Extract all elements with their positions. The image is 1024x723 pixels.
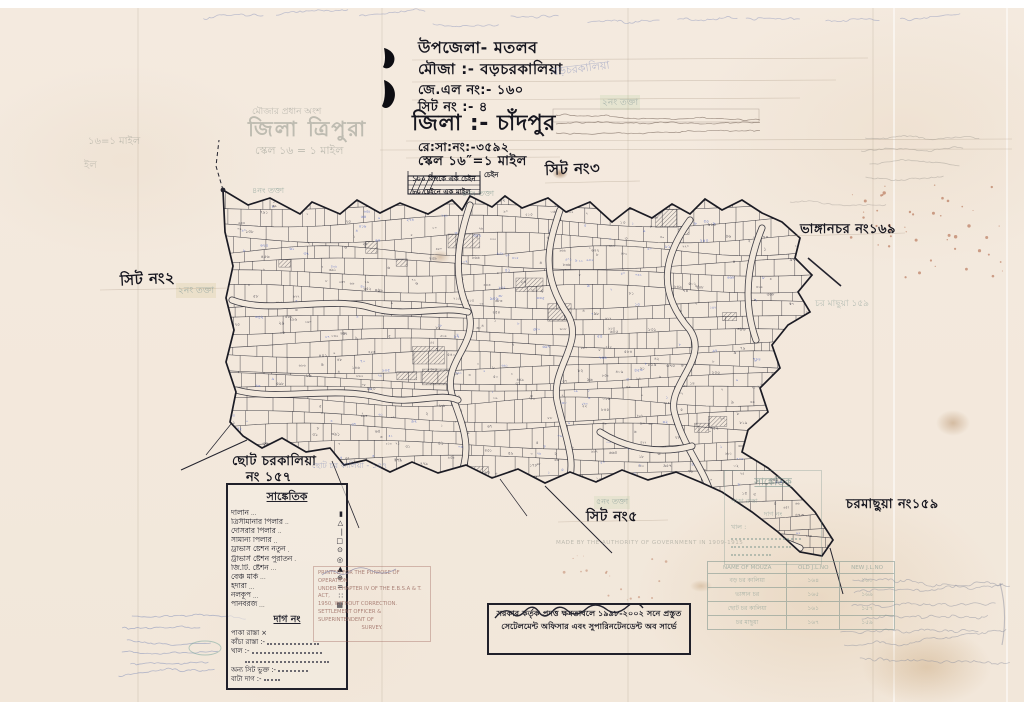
svg-text:০০৫: ০০৫ xyxy=(536,296,545,301)
svg-text:৬১: ৬১ xyxy=(379,413,384,417)
svg-text:৯৩৯: ৯৩৯ xyxy=(448,456,456,460)
svg-text:৯৬: ৯৬ xyxy=(587,378,593,383)
svg-text:১৯: ১৯ xyxy=(364,280,369,284)
svg-text:১: ১ xyxy=(763,248,766,253)
svg-text:১৮২: ১৮২ xyxy=(423,480,431,485)
svg-text:৫৮০: ৫৮০ xyxy=(581,346,589,350)
svg-text:৬: ৬ xyxy=(694,222,697,227)
svg-text:৯: ৯ xyxy=(736,378,739,382)
svg-text:২২: ২২ xyxy=(582,403,588,408)
jl-number-table: NAME OF MOUZA OLD J.L.NO NEW J.L.NO বড় … xyxy=(707,561,895,630)
svg-text:৫৪: ৫৪ xyxy=(597,334,603,339)
header-jl-no: জে.এল নং:- ১৬০ xyxy=(418,84,524,98)
svg-text:৯৬৯: ৯৬৯ xyxy=(559,248,565,252)
svg-text:৭৬: ৭৬ xyxy=(688,468,693,473)
svg-text:০: ০ xyxy=(710,478,712,482)
svg-text:৬: ৬ xyxy=(351,517,354,521)
svg-text:৮৮: ৮৮ xyxy=(548,416,553,420)
svg-text:১: ১ xyxy=(492,390,494,394)
svg-text:২: ২ xyxy=(695,301,698,305)
svg-text:৩৬৮: ৩৬৮ xyxy=(767,291,775,296)
svg-text:৬৭: ৬৭ xyxy=(487,423,492,428)
header-chain-note1: ১০০ লিংকে এক চেইন xyxy=(412,173,476,185)
svg-text:৪৩: ৪৩ xyxy=(255,383,261,388)
svg-text:২৪: ২৪ xyxy=(732,196,737,201)
svg-text:৪: ৪ xyxy=(732,260,735,265)
svg-text:০৫: ০৫ xyxy=(280,330,286,335)
svg-text:৭: ৭ xyxy=(307,241,310,246)
header-scale: স্কেল ১৬″=১ মাইল xyxy=(418,155,527,169)
svg-text:৪: ৪ xyxy=(248,283,250,287)
svg-text:৬৪: ৬৪ xyxy=(380,485,386,490)
svg-text:৮২: ৮২ xyxy=(578,369,584,374)
svg-text:১৩: ১৩ xyxy=(635,301,641,306)
svg-text:৬: ৬ xyxy=(713,221,716,226)
svg-text:৪৬: ৪৬ xyxy=(750,400,755,404)
svg-text:২৫৪: ২৫৪ xyxy=(492,310,500,315)
dag-row: অন্য সিট ভুক্ত :- xyxy=(231,666,343,675)
svg-text:১৬: ১৬ xyxy=(434,517,440,522)
svg-text:৮: ৮ xyxy=(659,479,662,483)
svg-text:০১৬: ০১৬ xyxy=(602,396,610,401)
svg-text:৯: ৯ xyxy=(659,374,661,378)
legend-title: সাঙ্কেতিক xyxy=(231,488,343,507)
svg-text:৮: ৮ xyxy=(540,508,543,512)
svg-text:২৯: ২৯ xyxy=(279,322,285,327)
svg-text:৪৫০: ৪৫০ xyxy=(435,247,441,251)
svg-text:৬১৮: ৬১৮ xyxy=(560,327,568,331)
svg-text:৪১: ৪১ xyxy=(822,363,827,367)
svg-text:৫: ৫ xyxy=(680,407,683,412)
svg-text:৪৪: ৪৪ xyxy=(817,259,822,263)
svg-text:৫১৬: ৫১৬ xyxy=(440,334,447,338)
svg-text:৯: ৯ xyxy=(271,376,274,381)
svg-text:৪৮: ৪৮ xyxy=(360,285,364,289)
traverse-station-old-icon: ◎ xyxy=(331,556,343,564)
svg-text:২০৮: ২০৮ xyxy=(825,391,833,396)
svg-text:৫: ৫ xyxy=(626,377,629,382)
svg-text:৬৯৭: ৬৯৭ xyxy=(542,344,550,349)
svg-text:৯: ৯ xyxy=(263,268,266,272)
svg-text:৪৪৯: ৪৪৯ xyxy=(516,377,524,382)
svg-text:৩১০: ৩১০ xyxy=(675,511,682,515)
header-upazila: উপজেলা- মতলব xyxy=(418,40,538,57)
svg-text:৫৮: ৫৮ xyxy=(253,294,260,299)
svg-text:৮৩৪: ৮৩৪ xyxy=(658,490,666,495)
dag-row: খাল :- xyxy=(231,647,343,665)
svg-text:৩: ৩ xyxy=(823,515,826,520)
svg-text:২৪: ২৪ xyxy=(363,241,368,246)
svg-text:৫০: ৫০ xyxy=(493,374,499,379)
svg-text:৮২: ৮২ xyxy=(435,325,441,330)
faded-board2-left: ২নং তক্তা xyxy=(176,283,216,298)
svg-text:৮৫৩: ৮৫৩ xyxy=(800,383,809,388)
svg-text:৩: ৩ xyxy=(220,386,223,391)
svg-text:৭৭৯: ৭৭৯ xyxy=(420,461,428,466)
svg-text:৮৩৯: ৮৩৯ xyxy=(602,374,610,378)
svg-text:১: ১ xyxy=(632,222,634,226)
svg-text:১৭৪: ১৭৪ xyxy=(414,480,422,485)
svg-text:৪৫৩: ৪৫৩ xyxy=(368,350,376,354)
svg-text:২৪০: ২৪০ xyxy=(700,239,709,244)
legend-item: ট্রাভার্স ষ্টেশন নতুন.⊙ xyxy=(231,546,343,555)
svg-text:৬৪৯: ৬৪৯ xyxy=(444,508,453,513)
svg-text:০: ০ xyxy=(780,349,783,354)
svg-text:৪: ৪ xyxy=(640,483,643,488)
svg-text:১১: ১১ xyxy=(578,259,583,263)
svg-text:৬৩: ৬৩ xyxy=(686,489,691,493)
dag-row: বাটা দাগ :- xyxy=(231,675,343,684)
svg-text:২৭৬: ২৭৬ xyxy=(534,539,544,544)
bhanganchar-label: ভাঙ্গানচর নং১৬৯ xyxy=(800,220,896,241)
faded-tripura-scale: স্কেল ১৬ = ১ মাইল xyxy=(255,142,343,161)
svg-text:৪৮০: ৪৮০ xyxy=(807,392,815,397)
svg-text:১: ১ xyxy=(720,444,723,449)
svg-text:৮৮৪: ৮৮৪ xyxy=(809,383,818,388)
svg-text:৮৭: ৮৭ xyxy=(789,302,794,306)
svg-text:২৯৯: ২৯৯ xyxy=(289,316,297,321)
faded-charbachhua: চর মাছুয়া ১৫৯ xyxy=(815,296,869,311)
building-icon: ▮ xyxy=(331,510,343,518)
svg-text:৮: ৮ xyxy=(679,342,681,346)
svg-text:১৮: ১৮ xyxy=(639,454,645,459)
svg-text:৩৬৩: ৩৬৩ xyxy=(645,500,653,505)
svg-text:৫৯: ৫৯ xyxy=(508,451,514,456)
svg-text:৬: ৬ xyxy=(415,281,418,286)
svg-text:৩১: ৩১ xyxy=(550,532,554,536)
svg-text:৮৭: ৮৭ xyxy=(720,417,724,421)
svg-text:৭৮০: ৭৮০ xyxy=(529,396,535,400)
svg-text:৪: ৪ xyxy=(481,323,484,328)
svg-text:৬৮৬: ৬৮৬ xyxy=(299,364,307,368)
svg-text:০৯: ০৯ xyxy=(602,421,606,425)
svg-text:০: ০ xyxy=(582,491,585,496)
svg-text:৬: ৬ xyxy=(811,375,813,379)
svg-text:৫০৫: ৫০৫ xyxy=(807,201,815,206)
svg-text:৯২১: ৯২১ xyxy=(789,341,798,346)
svg-text:৬৩৬: ৬৩৬ xyxy=(558,548,566,553)
svg-text:২: ২ xyxy=(554,452,557,457)
svg-text:২৪১: ২৪১ xyxy=(441,214,449,218)
svg-text:৮: ৮ xyxy=(756,439,759,444)
svg-text:৩০৬: ৩০৬ xyxy=(606,203,614,208)
faded-board4b: ৪নং তক্তা xyxy=(462,188,494,201)
svg-text:৮৭২: ৮৭২ xyxy=(662,483,671,488)
svg-text:২১১: ২১১ xyxy=(609,244,615,248)
svg-text:০১: ০১ xyxy=(375,289,381,294)
svg-text:৬৯১: ৬৯১ xyxy=(501,363,507,367)
svg-text:৬০: ৬০ xyxy=(670,487,676,492)
svg-text:৬৭৫: ৬৭৫ xyxy=(666,364,675,369)
svg-text:৬০৯: ৬০৯ xyxy=(305,474,313,479)
svg-text:২: ২ xyxy=(834,469,836,473)
table-row: বড় চর কালিয়া১৬৪১৬০ xyxy=(708,574,895,588)
svg-text:৮৭: ৮৭ xyxy=(454,335,460,340)
chain-label: চেইন xyxy=(484,169,498,181)
svg-text:৪: ৪ xyxy=(770,277,772,281)
svg-text:৯: ৯ xyxy=(731,400,734,405)
svg-text:০৬২: ০৬২ xyxy=(837,488,845,492)
svg-text:৬: ৬ xyxy=(588,396,591,400)
svg-text:৬৩৭: ৬৩৭ xyxy=(662,512,670,516)
faded-left-frag1: ১৬=১ মাইল xyxy=(88,134,140,151)
svg-text:৪৪৩: ৪৪৩ xyxy=(483,283,491,287)
svg-text:৭৯: ৭৯ xyxy=(796,358,801,362)
svg-text:১৪৬: ১৪৬ xyxy=(352,365,360,370)
svg-text:১: ১ xyxy=(816,258,818,262)
svg-text:২৫: ২৫ xyxy=(689,491,695,496)
svg-text:০৭: ০৭ xyxy=(477,543,483,548)
svg-text:১৯৮: ১৯৮ xyxy=(217,277,225,281)
svg-text:৯: ৯ xyxy=(734,351,737,356)
svg-text:১৯: ১৯ xyxy=(493,396,498,400)
faded-board2: ২নং তক্তা xyxy=(600,95,640,110)
svg-text:১৩৮: ১৩৮ xyxy=(245,230,254,235)
table-row: চর মাছুয়া১৬৭১৫৯ xyxy=(708,616,895,630)
svg-text:৮৫৫: ৮৫৫ xyxy=(499,285,507,289)
svg-text:৪৫: ৪৫ xyxy=(785,453,789,457)
svg-text:২: ২ xyxy=(425,412,428,417)
header-resa-no: রে:সা:নং:-৩৫৯২ xyxy=(418,141,509,154)
svg-text:৮৩৬: ৮৩৬ xyxy=(563,262,571,267)
svg-text:৩৭: ৩৭ xyxy=(217,425,223,430)
svg-text:৩৯১: ৩৯১ xyxy=(331,433,340,438)
svg-text:২: ২ xyxy=(483,369,485,373)
svg-text:৭: ৭ xyxy=(826,369,829,373)
svg-text:১৬০: ১৬০ xyxy=(305,320,311,324)
svg-text:৪: ৪ xyxy=(648,512,651,517)
svg-text:৩৮০: ৩৮০ xyxy=(533,326,541,331)
svg-text:৩৮৩: ৩৮৩ xyxy=(495,298,503,303)
svg-text:৭: ৭ xyxy=(597,484,600,489)
svg-text:৯৫৯: ৯৫৯ xyxy=(497,251,505,255)
svg-text:৯: ৯ xyxy=(540,546,542,550)
svg-text:৩৩৭: ৩৩৭ xyxy=(221,444,227,448)
svg-text:৯: ৯ xyxy=(454,551,456,555)
svg-text:৯: ৯ xyxy=(783,433,786,437)
svg-text:৬৬: ৬৬ xyxy=(350,281,354,285)
svg-text:৪: ৪ xyxy=(330,419,333,423)
svg-text:৫: ৫ xyxy=(455,419,457,423)
svg-text:৩৫: ৩৫ xyxy=(480,301,484,305)
svg-text:৩: ৩ xyxy=(642,521,645,526)
svg-text:৩: ৩ xyxy=(625,237,628,242)
svg-text:৫০২: ৫০২ xyxy=(835,262,841,266)
svg-text:৯৮১: ৯৮১ xyxy=(725,451,733,455)
tri-boundary-pillar-icon: △ xyxy=(331,519,343,527)
svg-text:৩০: ৩০ xyxy=(648,421,653,426)
svg-text:০৯: ০৯ xyxy=(715,552,721,557)
svg-text:১৮: ১৮ xyxy=(788,372,795,377)
svg-text:৮: ৮ xyxy=(800,347,804,352)
svg-text:৪: ৪ xyxy=(559,198,562,203)
svg-text:২৩৭: ২৩৭ xyxy=(339,280,346,284)
svg-text:৩৩: ৩৩ xyxy=(813,438,817,442)
svg-text:৩: ৩ xyxy=(468,373,471,377)
svg-text:৭: ৭ xyxy=(721,388,724,392)
svg-text:৮: ৮ xyxy=(517,321,520,325)
svg-text:৪৬: ৪৬ xyxy=(626,529,631,533)
traverse-station-new-icon: ⊙ xyxy=(331,546,343,554)
scanned-mouza-map: ৩২৪৪০১৪১৬৪২৩৯১৫৯৮৪৬৭৯৭৯৫৯১৩৪৯৪৫৬০২২৩০৩৮৭… xyxy=(0,0,1024,723)
svg-text:৭৯১: ৭৯১ xyxy=(260,210,268,215)
svg-text:১: ১ xyxy=(306,212,308,216)
svg-text:৫: ৫ xyxy=(388,333,391,338)
svg-text:১৩১: ১৩১ xyxy=(648,328,657,333)
svg-text:৯: ৯ xyxy=(587,284,590,289)
svg-text:৭৬৩: ৭৬৩ xyxy=(455,371,461,375)
charmachhua-label: চরমাছুয়া নং১৫৯ xyxy=(846,495,939,516)
svg-text:১৪: ১৪ xyxy=(753,431,759,436)
svg-text:০: ০ xyxy=(477,361,480,366)
svg-text:৬: ৬ xyxy=(681,362,684,367)
faded-legend-stamp: সাঙ্কেতিক পাকা রাস্তা দাগ নং খাল : xyxy=(724,470,822,565)
sheet5-label: সিট নং৫ xyxy=(586,505,638,529)
svg-text:০২: ০২ xyxy=(662,421,668,426)
svg-text:৮৬২: ৮৬২ xyxy=(356,374,364,378)
svg-text:৭৯: ৭৯ xyxy=(740,345,746,350)
svg-text:০: ০ xyxy=(641,392,644,397)
svg-text:৬২২: ৬২২ xyxy=(293,294,299,298)
svg-text:৫৯৮: ৫৯৮ xyxy=(276,381,284,386)
svg-text:৪: ৪ xyxy=(517,533,520,537)
svg-text:৬৯: ৬৯ xyxy=(554,458,559,462)
svg-text:৫: ৫ xyxy=(691,510,694,515)
svg-text:৭: ৭ xyxy=(321,265,323,269)
svg-text:৮: ৮ xyxy=(516,482,519,487)
svg-text:৯: ৯ xyxy=(643,228,646,233)
sheet3-label: সিট নং৩ xyxy=(545,157,601,184)
svg-text:৯২: ৯২ xyxy=(411,419,417,424)
svg-text:৮০২: ৮০২ xyxy=(637,413,643,417)
svg-text:৯৬৮: ৯৬৮ xyxy=(433,499,441,504)
svg-text:০২: ০২ xyxy=(733,463,739,468)
svg-text:১০: ১০ xyxy=(432,226,437,230)
svg-text:৬: ৬ xyxy=(621,552,624,557)
svg-text:৫৫: ৫৫ xyxy=(430,341,435,345)
svg-text:০: ০ xyxy=(246,419,249,424)
svg-text:৩: ৩ xyxy=(832,495,835,500)
svg-text:৪৮: ৪৮ xyxy=(337,357,343,362)
svg-text:১: ১ xyxy=(807,366,810,371)
svg-text:৩: ৩ xyxy=(276,445,279,450)
svg-text:৬: ৬ xyxy=(386,198,390,203)
svg-text:৪১৬: ৪১৬ xyxy=(756,285,762,289)
svg-text:৪৮: ৪৮ xyxy=(576,534,581,538)
svg-text:৯৪২: ৯৪২ xyxy=(586,258,594,262)
svg-text:৯: ৯ xyxy=(575,257,578,262)
svg-text:৮: ৮ xyxy=(492,542,495,547)
svg-text:৪১৬: ৪১৬ xyxy=(359,223,367,228)
svg-text:৫৫৮: ৫৫৮ xyxy=(219,452,227,456)
svg-text:৩: ৩ xyxy=(531,452,533,456)
header-mouza: মৌজা :- বড়চরকালিয়া xyxy=(418,62,563,78)
svg-text:৩: ৩ xyxy=(478,513,481,518)
svg-text:৮১৯: ৮১৯ xyxy=(648,363,657,368)
svg-text:৮৯: ৮৯ xyxy=(306,374,312,379)
svg-text:৬১৪: ৬১৪ xyxy=(663,401,669,405)
svg-text:৪৬৮: ৪৬৮ xyxy=(366,545,373,549)
svg-text:২৩৯: ২৩৯ xyxy=(429,256,437,261)
svg-text:৭২০: ৭২০ xyxy=(682,245,689,249)
svg-text:৮: ৮ xyxy=(325,279,328,283)
svg-text:১৪: ১৪ xyxy=(806,417,811,422)
svg-text:৩৭: ৩৭ xyxy=(303,252,309,257)
svg-text:২: ২ xyxy=(382,509,384,513)
svg-text:৯৮: ৯৮ xyxy=(594,312,600,317)
svg-text:৭১: ৭১ xyxy=(395,442,399,446)
svg-text:৫: ৫ xyxy=(768,386,770,390)
svg-text:৯: ৯ xyxy=(378,216,380,220)
sheet2-label: সিট নং২ xyxy=(119,267,175,295)
svg-text:৭: ৭ xyxy=(436,346,439,351)
svg-text:৩১৯: ৩১৯ xyxy=(374,547,382,551)
svg-text:২১: ২১ xyxy=(752,385,756,389)
svg-text:৬৬০: ৬৬০ xyxy=(609,451,618,456)
svg-text:৩: ৩ xyxy=(382,551,384,555)
svg-text:৯: ৯ xyxy=(805,353,808,357)
svg-text:৮: ৮ xyxy=(599,348,602,352)
svg-text:৯০: ৯০ xyxy=(241,228,245,232)
svg-text:৯০: ৯০ xyxy=(503,209,508,213)
svg-text:৮৭: ৮৭ xyxy=(325,335,330,339)
svg-text:৬: ৬ xyxy=(387,266,391,271)
scan-margin-top xyxy=(0,0,1024,8)
svg-text:৯৮২: ৯৮২ xyxy=(591,450,598,454)
svg-text:৫৪২: ৫৪২ xyxy=(428,534,436,539)
preparation-stamp-bn: সরকার কর্তৃক প্রদত্ত ক্ষমতাবলে ১৯৯৮-২০০২… xyxy=(487,603,691,655)
svg-text:৮৮০: ৮৮০ xyxy=(621,251,627,255)
svg-text:৫: ৫ xyxy=(781,405,784,409)
svg-text:১: ১ xyxy=(441,423,443,427)
svg-text:২৭৪: ২৭৪ xyxy=(406,217,414,222)
svg-text:৩৬: ৩৬ xyxy=(766,393,772,398)
officer-signature-en xyxy=(314,567,420,579)
svg-text:৯৭: ৯৭ xyxy=(712,348,718,353)
svg-text:৮: ৮ xyxy=(596,252,599,257)
svg-text:৮১৯: ৮১৯ xyxy=(740,420,748,425)
svg-text:২১: ২১ xyxy=(522,480,528,485)
legend-item: দালান...▮ xyxy=(231,509,343,518)
svg-text:৮: ৮ xyxy=(243,248,246,253)
svg-text:৯: ৯ xyxy=(364,541,367,545)
legend-item: ত্রিসীমানার পিলার..△ xyxy=(231,518,343,527)
svg-text:৭৮৩: ৭৮৩ xyxy=(549,539,555,543)
svg-text:৩: ৩ xyxy=(380,434,383,439)
svg-text:৬১৭: ৬১৭ xyxy=(605,317,612,321)
svg-text:০: ০ xyxy=(491,487,494,492)
svg-text:৪৮৭: ৪৮৭ xyxy=(833,485,841,489)
svg-text:৩১: ৩১ xyxy=(405,443,411,448)
svg-text:৪: ৪ xyxy=(761,452,764,457)
svg-text:৮৮: ৮৮ xyxy=(813,373,817,377)
svg-text:৫১৩: ৫১৩ xyxy=(525,212,533,216)
svg-text:৯৪৫: ৯৪৫ xyxy=(382,367,390,372)
svg-text:৫: ৫ xyxy=(561,468,564,473)
svg-text:৬৭: ৬৭ xyxy=(838,458,842,462)
svg-text:৬৪: ৬৪ xyxy=(375,238,381,243)
svg-text:৮: ৮ xyxy=(762,276,766,281)
svg-text:৬০৫: ৬০৫ xyxy=(610,330,619,335)
minor-pillar-icon: □ xyxy=(331,537,343,545)
svg-text:৭৯: ৭৯ xyxy=(537,451,541,455)
svg-text:২: ২ xyxy=(362,412,364,416)
svg-text:৬১: ৬১ xyxy=(635,482,640,486)
pencil-chhoto-charkalia: ছোট চর কালিয়া - ১৫৭ xyxy=(312,460,387,473)
svg-text:৯৮: ৯৮ xyxy=(644,497,650,502)
svg-text:৫: ৫ xyxy=(476,235,479,240)
officer-signature-bn xyxy=(489,605,649,623)
